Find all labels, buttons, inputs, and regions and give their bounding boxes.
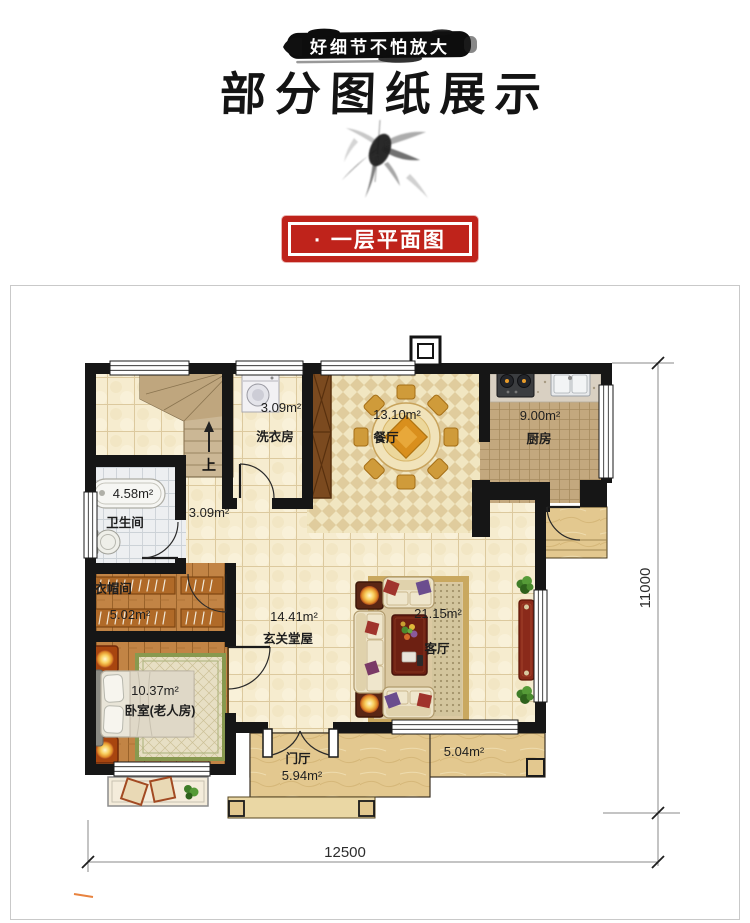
- tv-cabinet: [519, 600, 534, 680]
- foyer-name-label: 门厅: [285, 751, 311, 766]
- stairs-up-label: 上: [202, 457, 216, 473]
- window: [534, 590, 547, 702]
- entry-name-label: 玄关堂屋: [263, 631, 314, 646]
- kitchen-counter: [490, 371, 601, 402]
- living-area-label: 21.15m²: [414, 606, 462, 621]
- window: [84, 492, 97, 558]
- window: [114, 762, 210, 776]
- sofa-left: [354, 611, 385, 693]
- bay-platform: [108, 777, 208, 806]
- living-name-label: 客厅: [423, 641, 450, 656]
- coffee-table: [392, 615, 427, 675]
- sink-icon: [551, 372, 590, 396]
- plan-frame: 上 3.09m² 洗衣房 13.10m² 餐厅 9.00m² 厨房 4.58m²…: [10, 285, 740, 920]
- window: [392, 720, 518, 734]
- bath-area-label: 4.58m²: [113, 486, 154, 501]
- kitchen-name-label: 厨房: [526, 431, 551, 446]
- sofa-top: [383, 577, 434, 608]
- kitchen-area-label: 9.00m²: [520, 408, 561, 423]
- floor-plan: 上 3.09m² 洗衣房 13.10m² 餐厅 9.00m² 厨房 4.58m²…: [11, 286, 737, 917]
- cloak-name-label: 衣帽间: [94, 581, 132, 596]
- laundry-name-label: 洗衣房: [256, 429, 294, 444]
- dimension-width: 12500: [324, 844, 366, 861]
- foyer-area-label: 5.94m²: [282, 768, 323, 783]
- window: [110, 361, 189, 375]
- bedroom-name-label: 卧室(老人房): [125, 703, 196, 718]
- cloak-area-label: 5.02m²: [110, 607, 151, 622]
- sofa-bottom: [383, 687, 434, 718]
- bamboo-ink-icon: [318, 110, 448, 212]
- dining-cabinet: [312, 368, 331, 498]
- dining-name-label: 餐厅: [372, 430, 399, 445]
- porch-area-label: 5.04m²: [444, 744, 485, 759]
- window: [599, 385, 613, 478]
- orange-mark: [74, 894, 93, 897]
- dimension-height: 11000: [637, 568, 654, 609]
- bath-name-label: 卫生间: [106, 515, 144, 530]
- window: [321, 361, 415, 375]
- hall-area-label: 3.09m²: [189, 505, 230, 520]
- stove-icon: [497, 371, 534, 397]
- window: [236, 361, 303, 375]
- bedroom-area-label: 10.37m²: [131, 683, 179, 698]
- dining-area-label: 13.10m²: [373, 407, 421, 422]
- floor-label-stamp: · 一层平面图: [282, 216, 478, 262]
- entry-area-label: 14.41m²: [270, 609, 318, 624]
- laundry-area-label: 3.09m²: [261, 400, 302, 415]
- stamp-text: · 一层平面图: [314, 224, 446, 254]
